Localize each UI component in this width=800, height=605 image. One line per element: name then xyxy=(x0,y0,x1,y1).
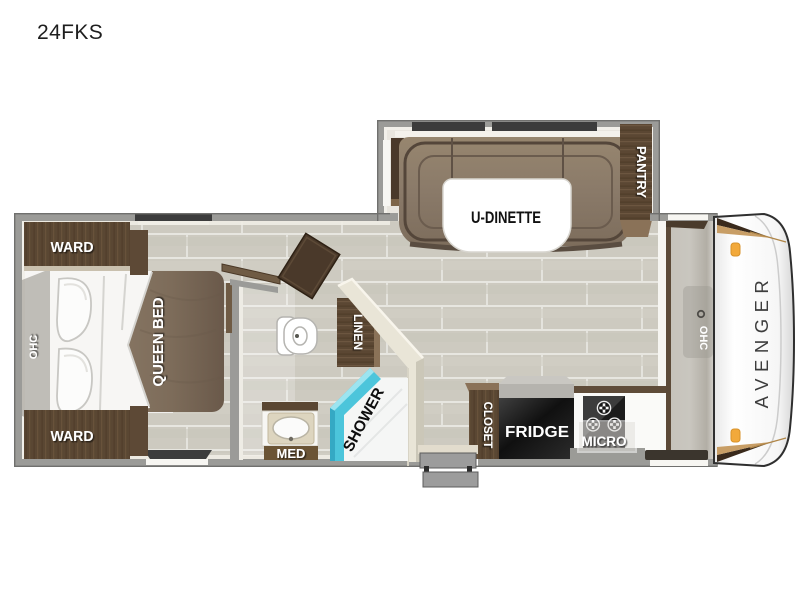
svg-text:OHC: OHC xyxy=(697,326,709,351)
svg-text:LINEN: LINEN xyxy=(351,314,365,350)
svg-text:U-DINETTE: U-DINETTE xyxy=(471,209,541,227)
svg-text:MICRO: MICRO xyxy=(582,434,627,449)
svg-text:PANTRY: PANTRY xyxy=(634,146,649,198)
svg-text:OHC: OHC xyxy=(28,335,40,360)
svg-text:MED: MED xyxy=(277,446,306,461)
svg-text:FRIDGE: FRIDGE xyxy=(505,424,569,441)
svg-text:AVENGER: AVENGER xyxy=(751,274,772,409)
svg-text:24FKS: 24FKS xyxy=(37,21,103,44)
svg-text:WARD: WARD xyxy=(51,428,94,445)
svg-text:CLOSET: CLOSET xyxy=(481,402,493,449)
svg-text:QUEEN BED: QUEEN BED xyxy=(150,297,167,386)
svg-text:WARD: WARD xyxy=(51,239,94,256)
